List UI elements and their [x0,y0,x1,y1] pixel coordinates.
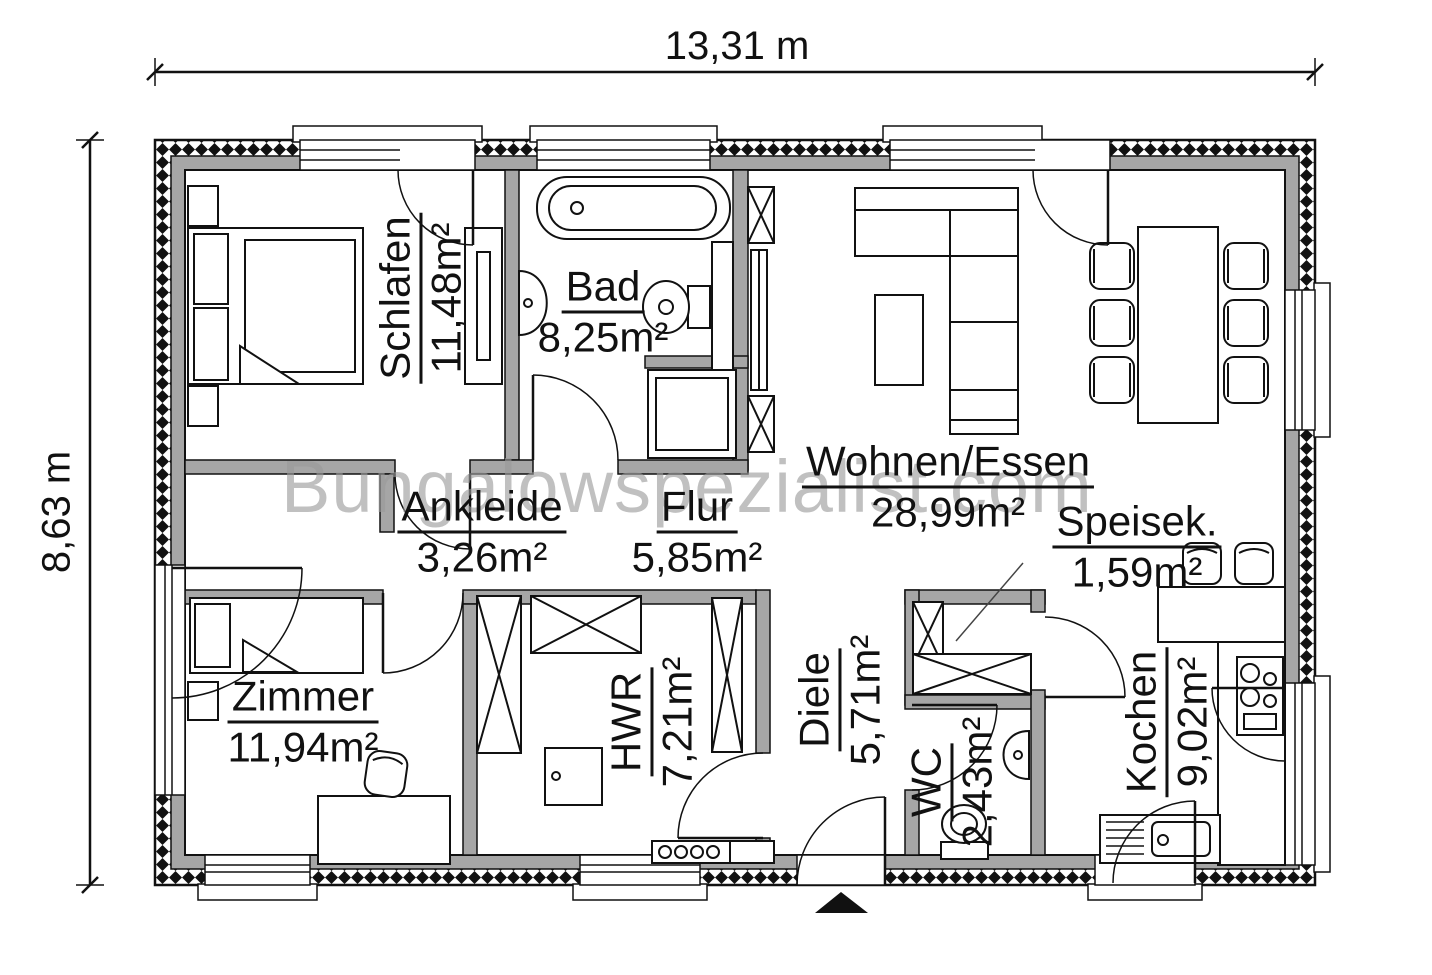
dining-chair-icon [1090,300,1134,346]
dimension-height-label: 8,63 m [35,451,80,573]
window-sill [1314,283,1330,437]
room-label-schlafen: Schlafen 11,48m² [373,212,468,383]
window-essen [1285,290,1315,430]
room-area: 28,99m² [802,488,1094,535]
room-label-hwr: HWR 7,21m² [604,657,699,788]
window-zimmer [205,855,310,885]
room-label-wc: WC 2,43m² [904,717,999,848]
room-area: 11,48m² [422,212,469,383]
window-sill [198,884,317,900]
room-area: 8,25m² [538,313,669,360]
room-area: 2,43m² [953,717,1000,848]
room-label-bad: Bad 8,25m² [538,264,669,359]
room-label-flur: Flur 5,85m² [632,484,763,579]
room-area: 3,26m² [397,533,566,580]
room-name: Wohnen/Essen [802,439,1094,488]
room-label-diele: Diele 5,71m² [792,635,887,766]
coffee-table-icon [875,295,923,385]
side-table-icon [188,682,218,720]
room-label-zimmer: Zimmer 11,94m² [228,674,379,769]
window-sill [1088,884,1202,900]
room-area: 7,21m² [653,657,700,788]
room-area: 5,85m² [632,533,763,580]
dining-chair-icon [1224,357,1268,403]
stove-icon [1237,657,1283,735]
door-opening-zimmer [155,565,185,795]
room-label-ankleide: Ankleide 3,26m² [397,484,566,579]
bathtub-icon [537,177,730,239]
room-area: 1,59m² [1052,548,1221,595]
room-label-speisekammer: Speisek. 1,59m² [1052,499,1221,594]
double-bed-icon [188,228,363,384]
window-sill [1314,676,1330,872]
window-schlafen [300,140,475,170]
entrance-opening [797,855,885,885]
room-name: Diele [792,648,841,752]
dining-chair-icon [1090,357,1134,403]
room-name: Flur [657,484,737,533]
room-name: Speisek. [1052,499,1221,548]
room-name: Bad [562,264,645,313]
window-sill [573,884,707,900]
room-name: HWR [604,668,653,776]
desk-icon [318,796,450,864]
washing-machine-icon [652,841,774,863]
window-bad [537,140,710,170]
dimension-width-label: 13,31 m [665,24,810,69]
floor-plan: Bungalowspezialist.com 13,31 m 8,63 m Sc… [0,0,1432,975]
dining-table-icon [1138,227,1218,423]
room-name: Schlafen [373,212,422,383]
room-label-wohnen-essen: Wohnen/Essen 28,99m² [802,439,1094,534]
room-area: 5,71m² [841,635,888,766]
window-kochen [1285,683,1315,865]
room-name: Zimmer [228,674,378,723]
dining-chair-icon [1224,243,1268,289]
dining-chair-icon [1090,243,1134,289]
room-area: 11,94m² [228,723,379,770]
room-label-kochen: Kochen 9,02m² [1119,647,1214,797]
dining-chair-icon [1224,300,1268,346]
boiler-icon [545,748,602,805]
single-bed-icon [190,598,363,673]
room-name: Kochen [1119,647,1168,797]
room-area: 9,02m² [1168,647,1215,797]
room-name: WC [904,743,953,821]
entrance-arrow-icon [815,892,868,913]
height-dimension-line [76,132,104,893]
wardrobe-icon [465,228,502,384]
window-wohnen [890,140,1110,170]
room-name: Ankleide [397,484,566,533]
